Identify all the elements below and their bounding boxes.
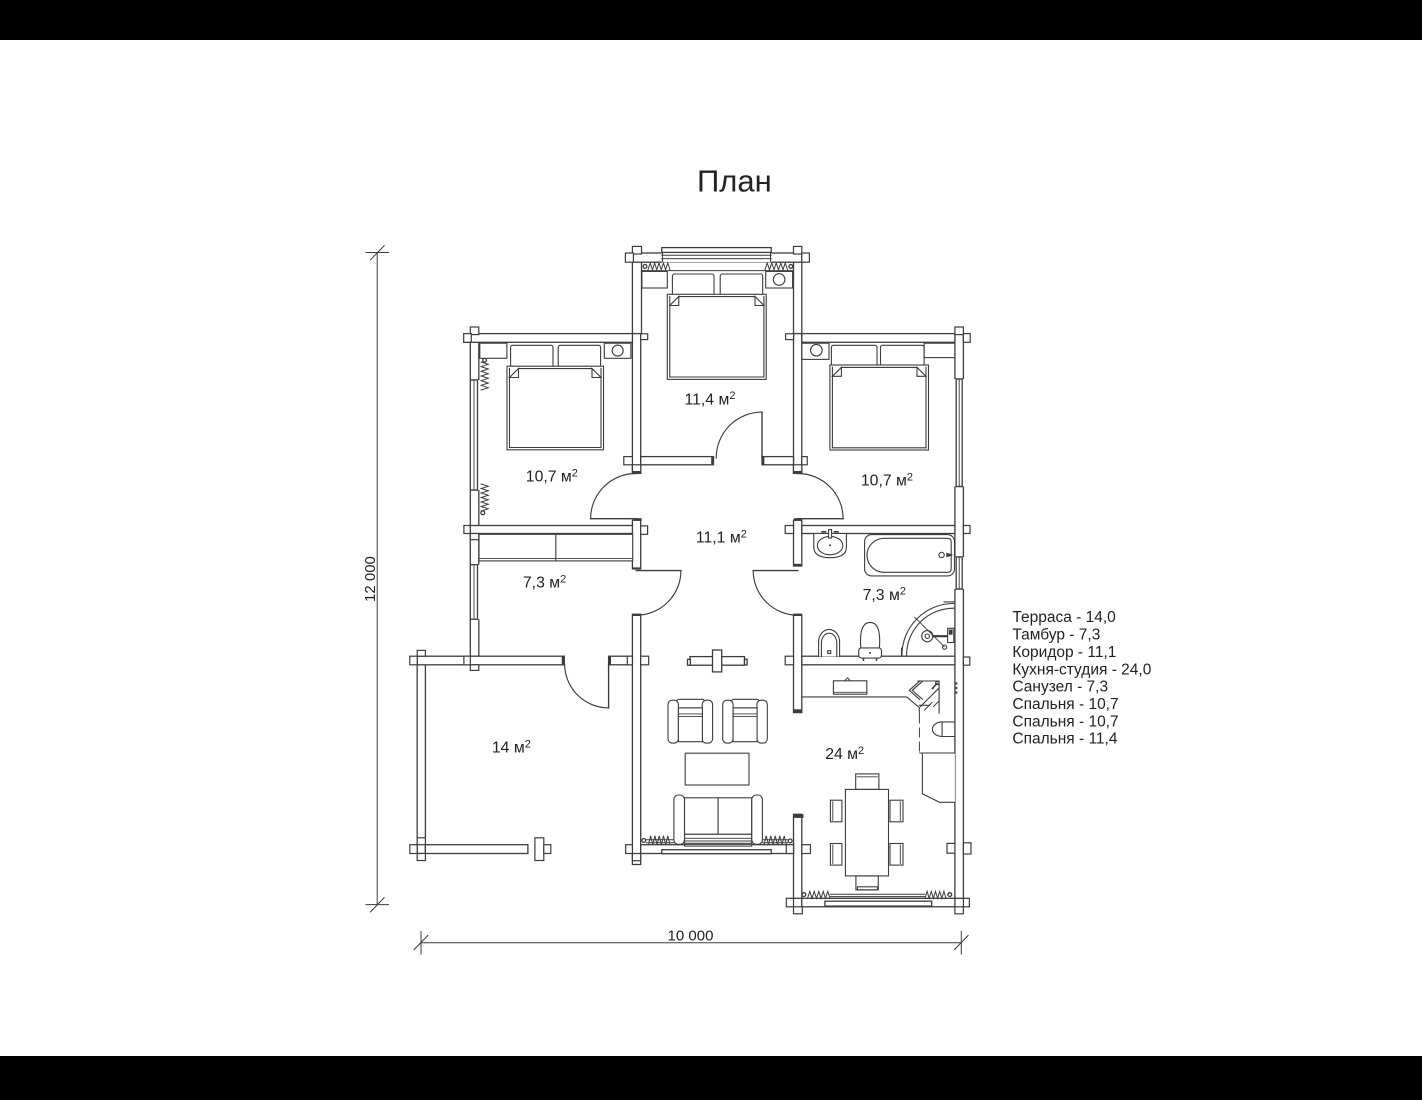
svg-text:Спальня - 10,7: Спальня - 10,7 (1012, 696, 1118, 713)
svg-text:7,3 м2: 7,3 м2 (523, 573, 566, 591)
svg-text:10,7 м2: 10,7 м2 (861, 472, 913, 490)
svg-text:10,7 м2: 10,7 м2 (526, 467, 578, 485)
svg-text:Кухня-студия - 24,0: Кухня-студия - 24,0 (1012, 661, 1151, 678)
svg-text:11,4 м2: 11,4 м2 (685, 390, 736, 408)
svg-text:Спальня - 11,4: Спальня - 11,4 (1012, 731, 1117, 748)
svg-text:12 000: 12 000 (362, 556, 379, 602)
svg-text:7,3 м2: 7,3 м2 (863, 586, 906, 604)
svg-text:План: План (697, 164, 772, 199)
svg-text:Коридор - 11,1: Коридор - 11,1 (1012, 644, 1116, 661)
svg-text:Санузел - 7,3: Санузел - 7,3 (1012, 679, 1108, 696)
svg-text:Терраса - 14,0: Терраса - 14,0 (1012, 609, 1116, 626)
svg-text:10 000: 10 000 (668, 928, 714, 945)
svg-text:Спальня - 10,7: Спальня - 10,7 (1012, 713, 1118, 730)
svg-text:11,1 м2: 11,1 м2 (696, 528, 747, 546)
svg-text:Тамбур - 7,3: Тамбур - 7,3 (1012, 627, 1100, 644)
svg-text:24 м2: 24 м2 (825, 745, 864, 763)
svg-text:14 м2: 14 м2 (492, 739, 531, 757)
